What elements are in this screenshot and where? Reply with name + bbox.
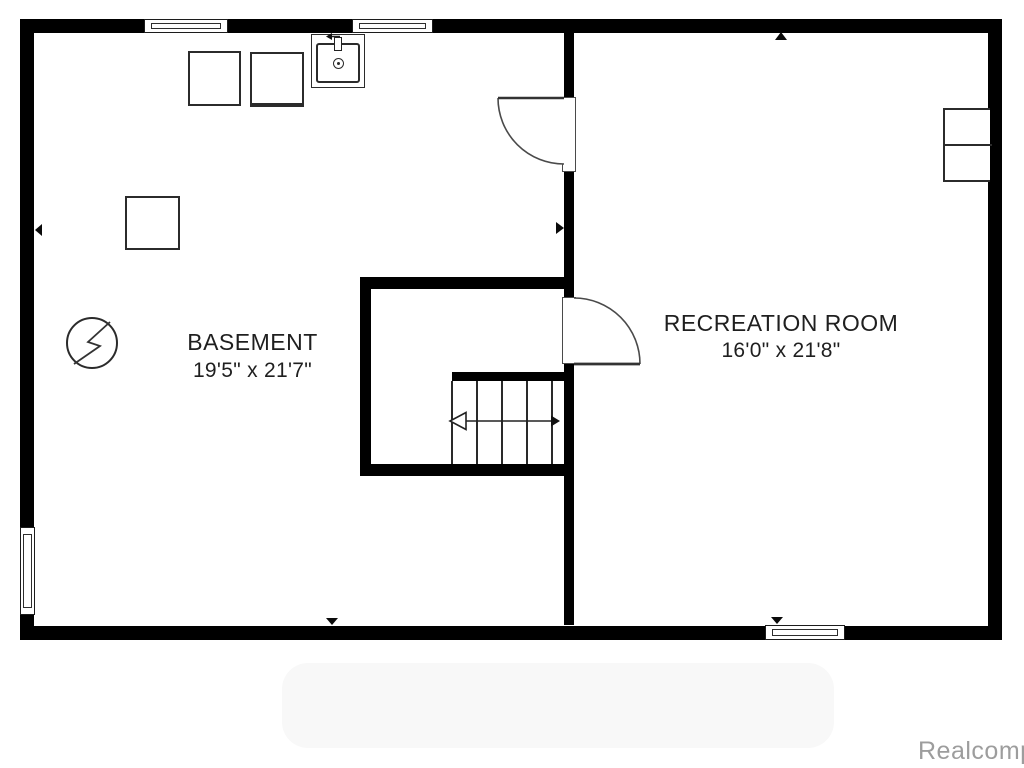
window-glass	[23, 534, 32, 608]
furnace-box	[125, 196, 180, 250]
realcomp-watermark: Realcomp	[918, 737, 1024, 766]
window-glass	[359, 23, 426, 29]
basement-room-label: BASEMENT	[150, 329, 355, 356]
recreation-room-dimensions: 16'0" x 21'8"	[655, 339, 907, 363]
dividing-wall-middle	[564, 172, 574, 297]
window-top-left	[144, 19, 228, 33]
stair-tread-line	[476, 381, 478, 464]
sink-faucet-icon	[334, 37, 342, 51]
stair-head-wall	[452, 372, 564, 381]
stair-tread-line	[526, 381, 528, 464]
basement-room-dimensions: 19'5" x 21'7"	[150, 359, 355, 383]
window-top-middle	[352, 19, 433, 33]
sink-drain-icon	[333, 58, 344, 69]
stair-tread-line	[551, 381, 553, 464]
door-recreation-jamb	[562, 297, 576, 364]
shelf-divider-line	[943, 144, 992, 146]
window-bottom-right	[765, 625, 845, 640]
electrical-panel-icon	[66, 317, 118, 369]
window-left	[20, 527, 35, 615]
window-glass	[151, 23, 221, 29]
floor-plan-image: BASEMENT 19'5" x 21'7" RECREATION ROOM 1…	[0, 0, 1024, 768]
dividing-wall-lower	[564, 364, 574, 625]
faint-watermark-blob	[282, 663, 834, 748]
dryer-box	[250, 52, 304, 107]
dividing-wall-upper	[564, 33, 574, 97]
stair-enclosure-left-wall	[360, 277, 371, 476]
window-glass	[772, 629, 838, 636]
stair-tread-line	[451, 381, 453, 464]
shelving-unit	[943, 108, 990, 182]
stair-enclosure-bottom-wall	[360, 464, 564, 476]
washer-box	[188, 51, 241, 106]
door-basement-jamb	[562, 97, 576, 172]
stair-enclosure-top-wall	[360, 277, 564, 289]
stair-tread-line	[501, 381, 503, 464]
recreation-room-label: RECREATION ROOM	[655, 310, 907, 337]
